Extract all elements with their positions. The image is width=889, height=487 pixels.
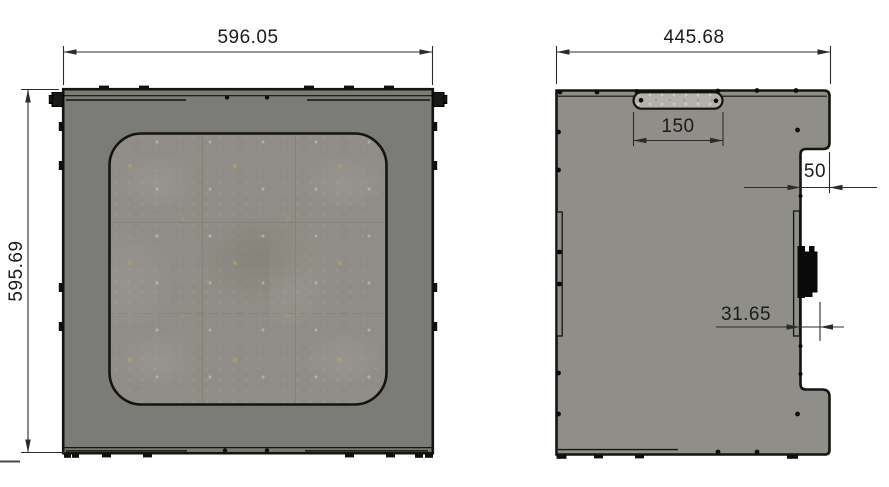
- window-outline: [110, 134, 387, 405]
- dim-label-front-width: 596.05: [188, 28, 308, 48]
- drawing-dimension-layer: [0, 0, 889, 487]
- dimension-front-height: [21, 90, 66, 453]
- dim-label-connector-offset: 31.65: [686, 305, 806, 325]
- dim-label-notch-depth: 50: [795, 162, 835, 182]
- dimension-side-width: [557, 46, 831, 84]
- dim-label-front-height: 595.69: [7, 211, 27, 331]
- technical-drawing-canvas: 596.05 595.69 445.68 150 50 31.65: [0, 0, 889, 487]
- dimension-front-width: [64, 46, 433, 85]
- handle-slot-screws: [639, 98, 719, 103]
- dim-label-handle-slot: 150: [648, 117, 708, 137]
- dim-label-side-width: 445.68: [634, 28, 754, 48]
- handle-slot-outline: [634, 92, 723, 108]
